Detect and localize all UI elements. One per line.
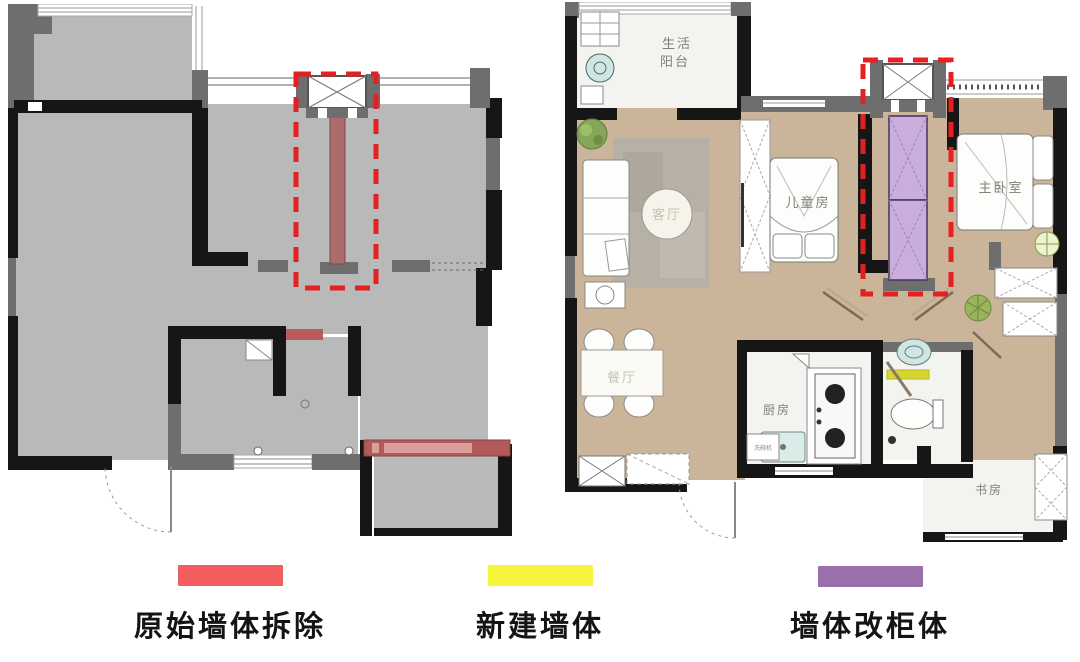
tv-cabinet [740, 120, 770, 272]
legend-label-new-wall: 新建墙体 [410, 603, 670, 645]
living-room-label: 客厅 [652, 207, 682, 222]
right-plan-duct-shaft [870, 60, 946, 118]
dishwasher-label: 洗碗机 [754, 444, 772, 452]
right-plan-entry-door [679, 482, 735, 538]
balcony-label-line2: 阳台 [660, 54, 690, 69]
right-plan-svg: 生活 阳台 客厅 儿童房 主卧室 餐厅 厨房 洗碗机 书房 [565, 2, 1075, 542]
floorplan-comparison-canvas: 生活 阳台 客厅 儿童房 主卧室 餐厅 厨房 洗碗机 书房 原始墙体拆除 新建墙… [0, 0, 1080, 662]
kitchen-label: 厨房 [763, 402, 791, 417]
left-plan-original-structure [8, 4, 513, 539]
right-plan-study [1035, 454, 1067, 520]
right-plan-purple-cabinets [889, 116, 927, 280]
bath-sink-icon [897, 339, 931, 365]
left-plan-svg [8, 4, 513, 539]
balcony-label-line1: 生活 [662, 36, 692, 51]
washing-machine-icon [586, 54, 614, 82]
plant-icon [577, 119, 607, 149]
legend-swatch-new-wall [488, 565, 593, 586]
right-plan-kids-room [770, 158, 838, 262]
kids-room-label: 儿童房 [785, 195, 830, 210]
legend: 原始墙体拆除 新建墙体 墙体改柜体 [0, 552, 1080, 662]
legend-label-wall-to-cabinet: 墙体改柜体 [740, 603, 1000, 645]
study-label: 书房 [975, 482, 1003, 497]
toilet-icon [891, 399, 935, 429]
legend-label-demolish: 原始墙体拆除 [100, 603, 360, 645]
left-plan-duct-shaft [306, 76, 368, 118]
right-plan-renovated-layout: 生活 阳台 客厅 儿童房 主卧室 餐厅 厨房 洗碗机 书房 [565, 2, 1075, 542]
left-plan-entry-door [105, 466, 171, 532]
legend-swatch-wall-to-cabinet [818, 566, 923, 587]
tv-icon [741, 183, 744, 247]
dining-room-label: 餐厅 [607, 370, 637, 385]
master-bedroom-label: 主卧室 [978, 180, 1023, 195]
legend-swatch-demolish [178, 565, 283, 586]
